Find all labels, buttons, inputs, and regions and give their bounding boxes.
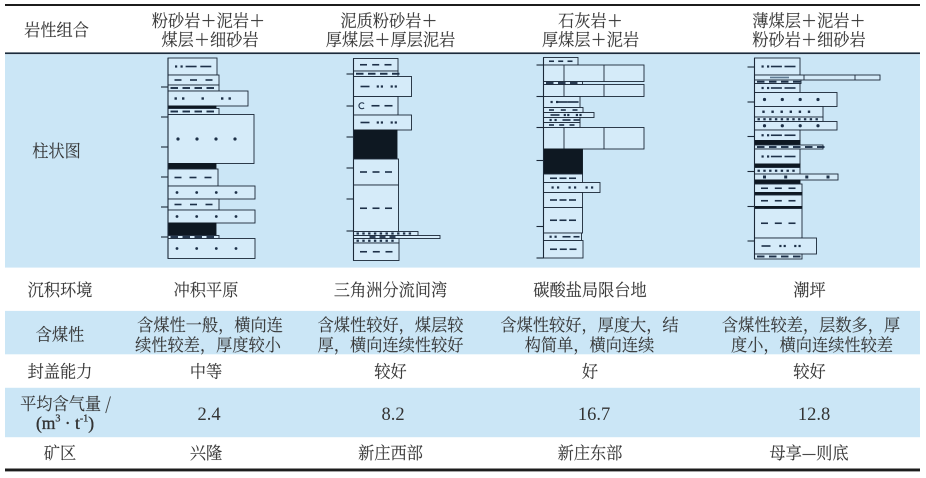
- svg-text:16.7: 16.7: [578, 405, 610, 425]
- svg-text:12.8: 12.8: [798, 405, 830, 425]
- svg-text:8.2: 8.2: [381, 405, 404, 425]
- svg-text:2.4: 2.4: [197, 405, 220, 425]
